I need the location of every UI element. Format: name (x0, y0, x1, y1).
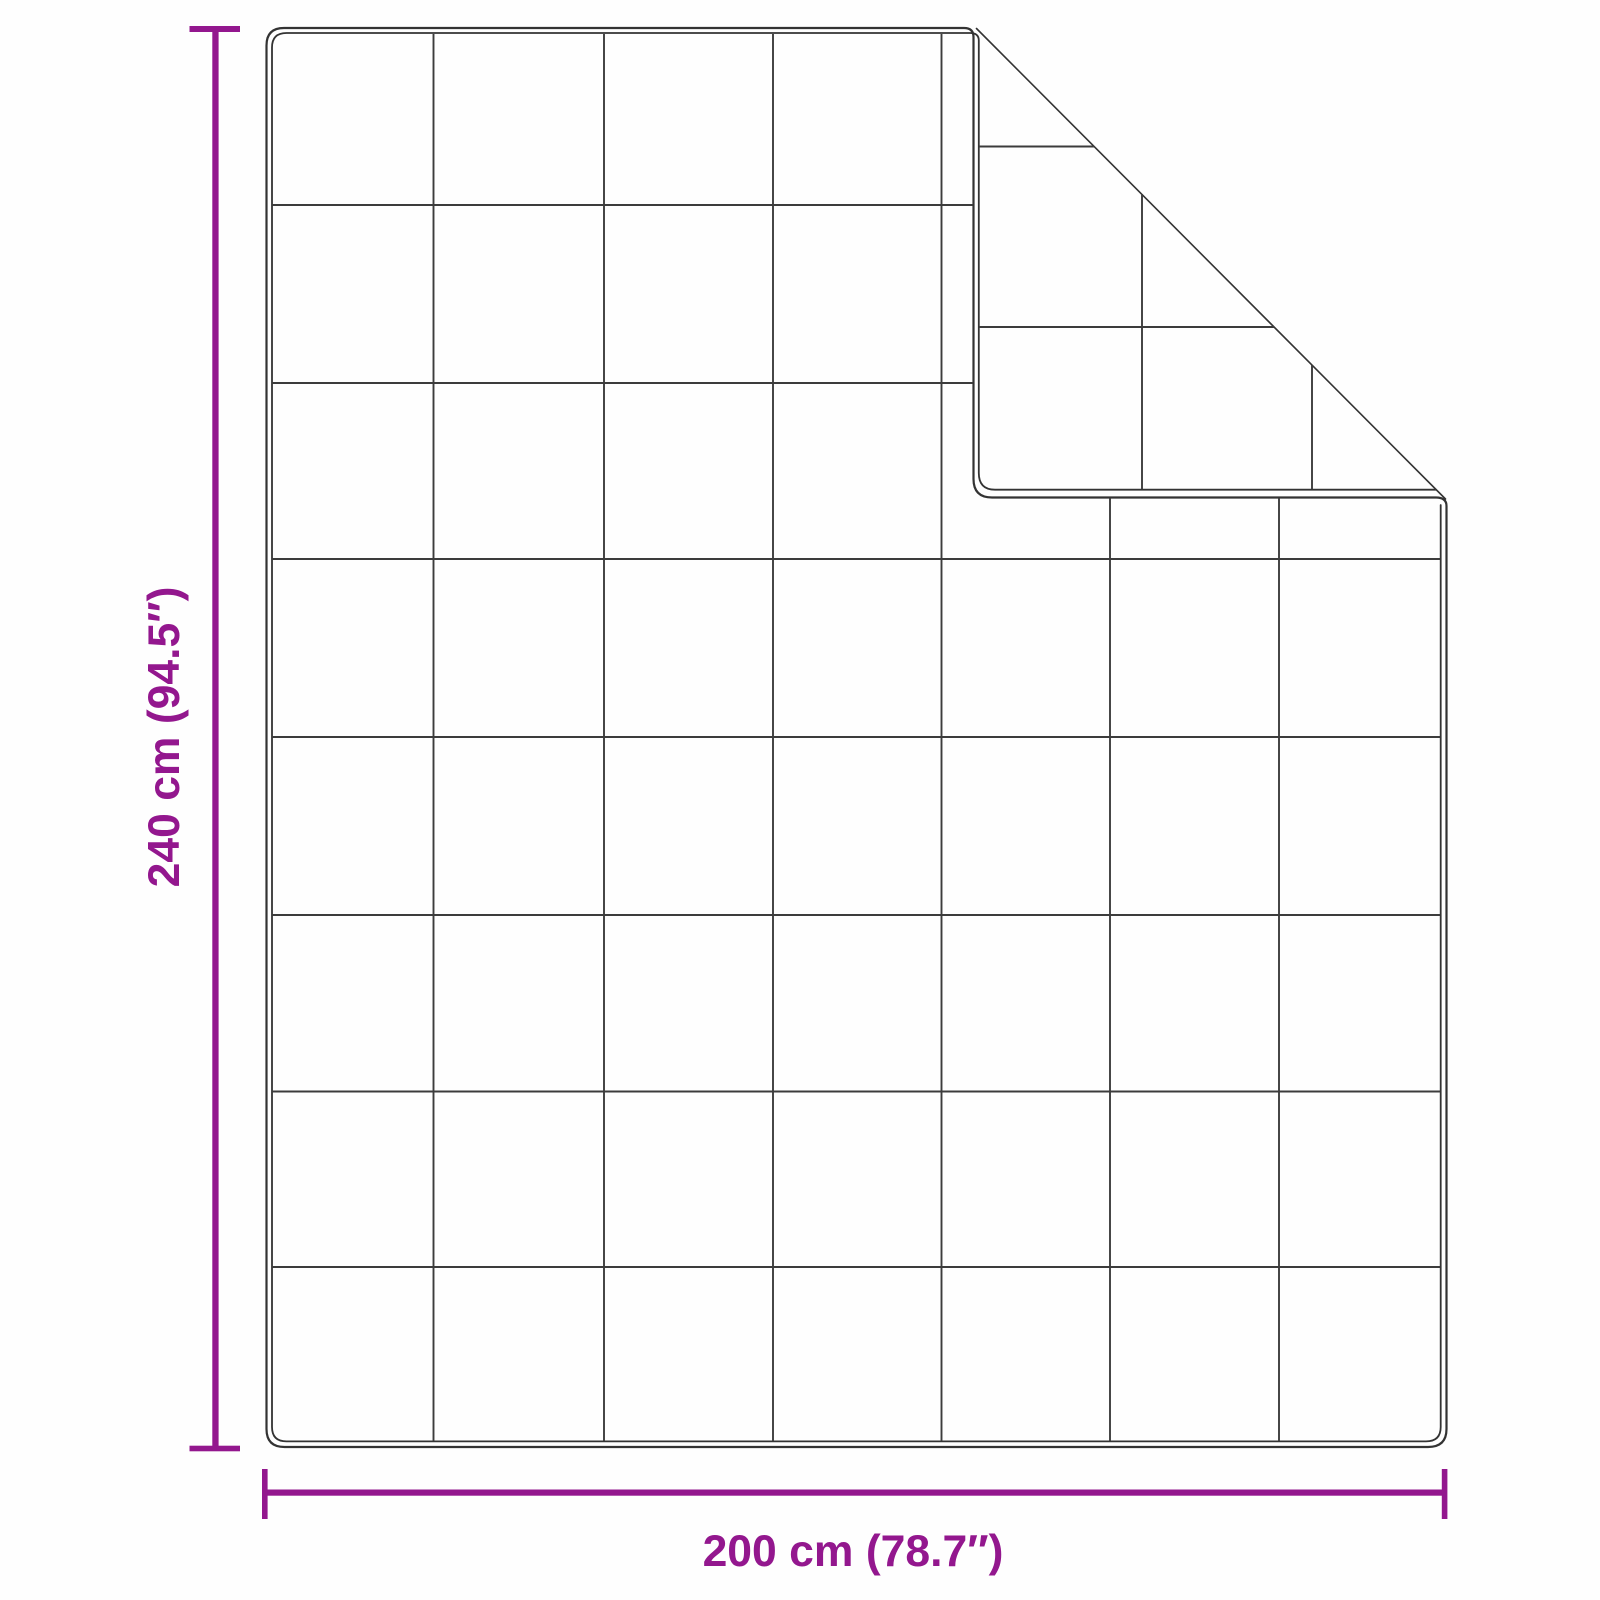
svg-text:200 cm (78.7″): 200 cm (78.7″) (703, 1527, 1004, 1576)
svg-text:240 cm (94.5″): 240 cm (94.5″) (140, 587, 189, 888)
